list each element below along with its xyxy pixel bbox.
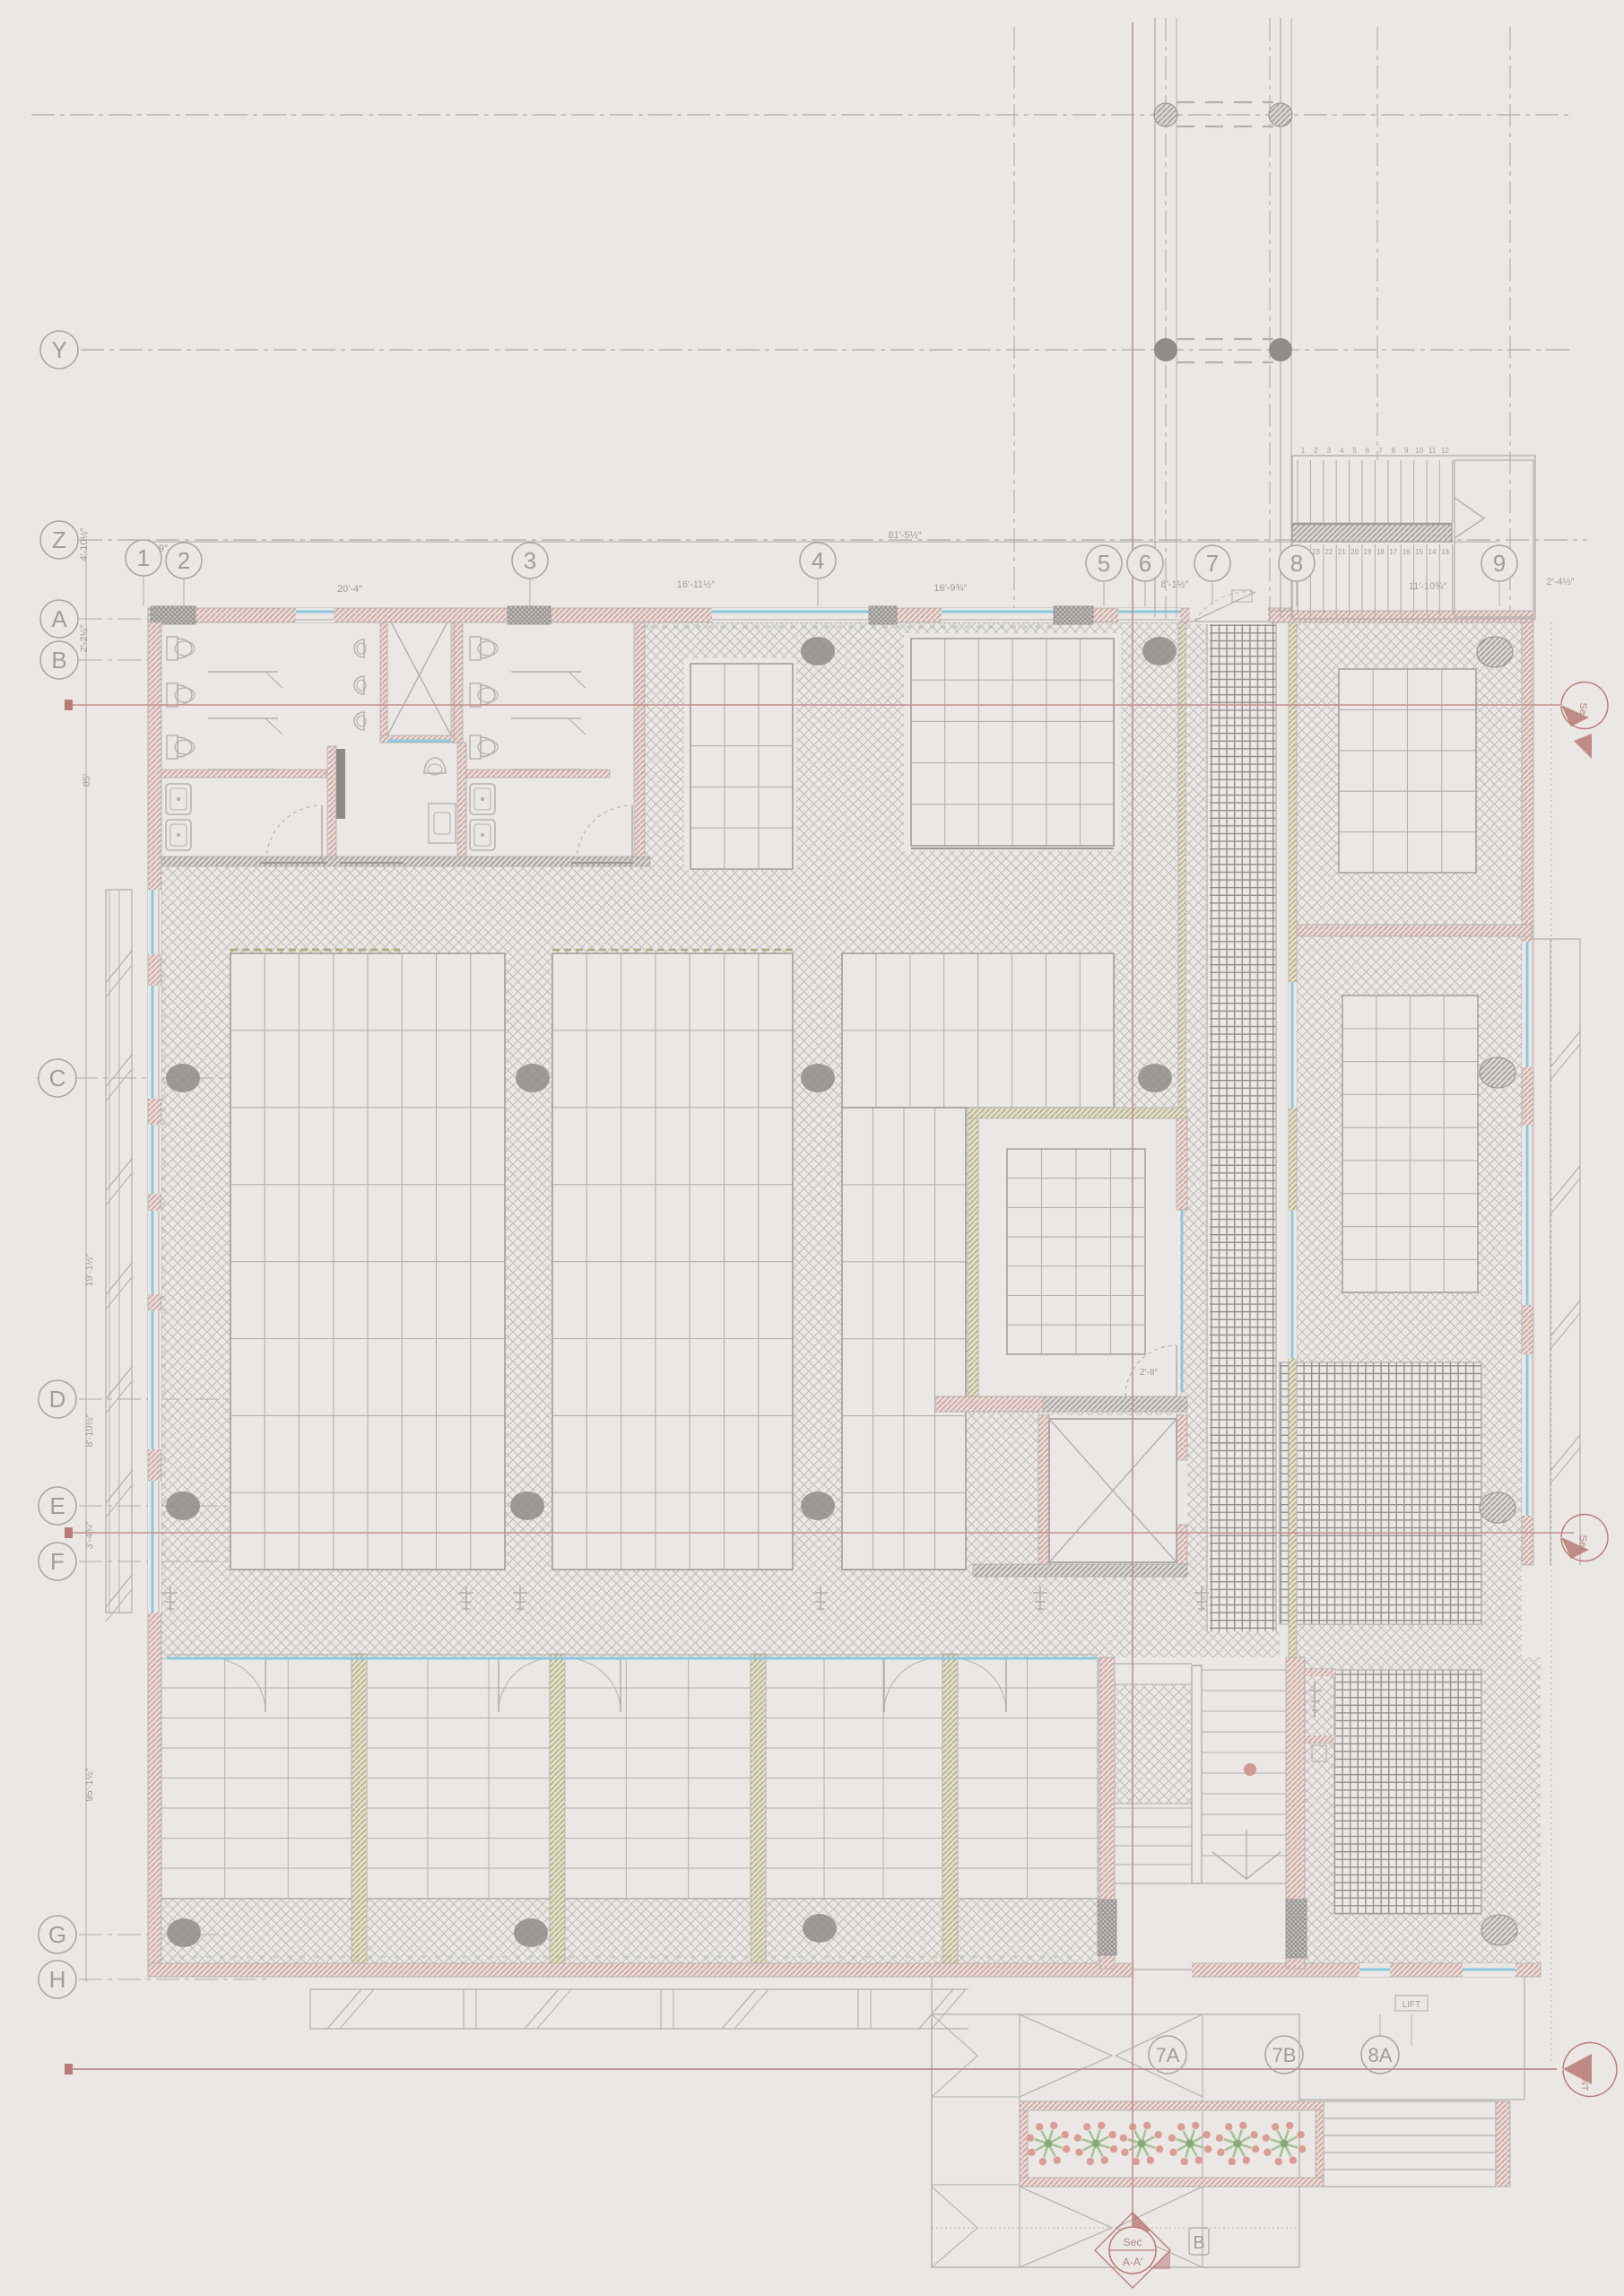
svg-text:21: 21 (1338, 548, 1346, 556)
svg-text:20: 20 (1350, 548, 1359, 556)
svg-text:8A: 8A (1368, 2044, 1393, 2066)
svg-text:16′-9¾″: 16′-9¾″ (934, 583, 967, 594)
svg-text:9: 9 (1404, 447, 1409, 455)
svg-text:2′-8″: 2′-8″ (1140, 1368, 1158, 1378)
svg-text:4: 4 (1340, 447, 1344, 455)
svg-text:H: H (49, 1966, 66, 1993)
svg-text:2: 2 (178, 547, 190, 574)
svg-text:14: 14 (1429, 548, 1437, 556)
svg-text:B: B (1193, 2233, 1204, 2253)
svg-text:22: 22 (1324, 548, 1333, 556)
svg-text:3: 3 (1327, 447, 1332, 455)
svg-text:95′-1½″: 95′-1½″ (84, 1768, 95, 1801)
svg-text:LIFT: LIFT (1403, 2000, 1421, 2010)
svg-text:5: 5 (1352, 447, 1357, 455)
svg-text:19′-1½″: 19′-1½″ (84, 1253, 95, 1286)
svg-text:12: 12 (1441, 447, 1449, 455)
svg-text:2′-2½″: 2′-2½″ (79, 624, 90, 652)
svg-text:9: 9 (1493, 550, 1506, 577)
svg-text:7: 7 (1378, 447, 1383, 455)
svg-text:F: F (50, 1548, 65, 1575)
svg-text:11′-10¾″: 11′-10¾″ (1409, 581, 1447, 592)
svg-text:7A: 7A (1156, 2044, 1180, 2066)
svg-text:13: 13 (1441, 548, 1449, 556)
svg-text:B: B (51, 647, 66, 674)
svg-text:A: A (51, 605, 67, 632)
svg-text:10: 10 (1415, 447, 1423, 455)
svg-text:7B: 7B (1272, 2044, 1297, 2066)
svg-text:2′-4½″: 2′-4½″ (1546, 577, 1574, 587)
svg-text:4: 4 (812, 547, 824, 574)
svg-text:Sec: Sec (1577, 1535, 1588, 1552)
svg-text:15: 15 (1415, 548, 1423, 556)
svg-text:6: 6 (1139, 550, 1151, 577)
svg-text:85′: 85′ (82, 774, 92, 787)
svg-text:20′-4″: 20′-4″ (337, 584, 362, 595)
svg-text:9″: 9″ (159, 544, 168, 554)
svg-text:Sec: Sec (1577, 703, 1588, 720)
svg-text:3: 3 (524, 547, 536, 574)
svg-text:A-A′: A-A′ (1123, 2256, 1143, 2268)
svg-text:17: 17 (1389, 548, 1397, 556)
svg-text:16: 16 (1403, 548, 1411, 556)
svg-text:C: C (49, 1065, 66, 1091)
svg-text:3′-4¾″: 3′-4¾″ (84, 1521, 95, 1549)
svg-text:11: 11 (1429, 447, 1437, 455)
svg-text:2: 2 (1314, 447, 1318, 455)
svg-text:81′-5½″: 81′-5½″ (888, 530, 921, 541)
svg-text:Y: Y (51, 336, 66, 363)
svg-text:D: D (49, 1386, 66, 1413)
svg-text:Sec: Sec (1124, 2236, 1142, 2248)
svg-text:19: 19 (1364, 548, 1372, 556)
svg-text:6: 6 (1366, 447, 1370, 455)
svg-text:FRONT: FRONT (1579, 2060, 1589, 2091)
svg-text:E: E (49, 1492, 65, 1519)
svg-text:7: 7 (1206, 550, 1219, 577)
svg-text:8′-10½″: 8′-10½″ (84, 1413, 95, 1447)
svg-text:G: G (48, 1921, 66, 1948)
svg-text:1: 1 (137, 544, 150, 571)
svg-text:16′-11½″: 16′-11½″ (677, 579, 716, 590)
svg-text:1: 1 (1301, 447, 1306, 455)
svg-text:4′-10½″: 4′-10½″ (79, 527, 90, 561)
svg-text:8: 8 (1392, 447, 1396, 455)
svg-text:8′-1½″: 8′-1½″ (1160, 579, 1188, 590)
svg-text:5: 5 (1098, 550, 1110, 577)
svg-text:18: 18 (1376, 548, 1385, 556)
svg-text:Z: Z (52, 526, 66, 553)
svg-text:8: 8 (1290, 550, 1303, 577)
